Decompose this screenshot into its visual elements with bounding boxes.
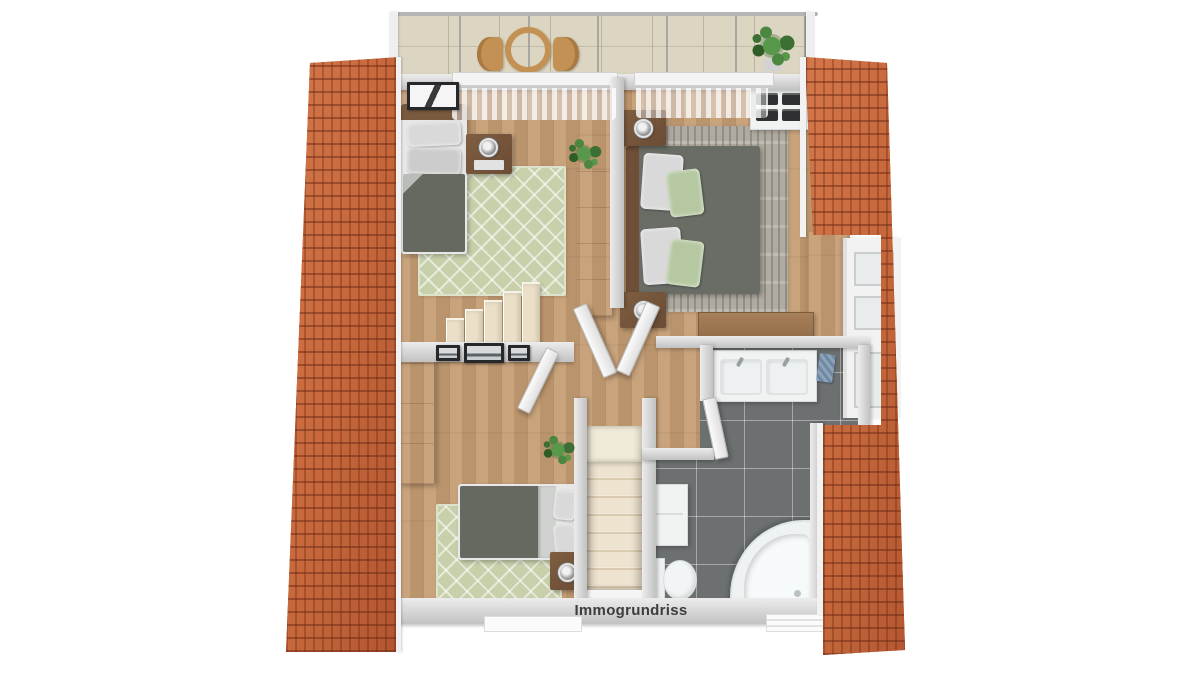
hall-bath-step-wall [642,448,714,460]
gallery-picture [508,345,530,361]
single-bed [401,104,467,254]
upper-staircase [446,282,540,344]
pillow [406,121,461,148]
floor-plan-image: Immogrundriss [0,0,1200,675]
stair-step [484,300,502,344]
nightstand-upper-left [466,134,512,174]
balcony-chair-right [553,37,579,71]
left-roof-slope [286,57,400,652]
hallway-plant-icon [551,443,564,456]
pillow-green [665,238,704,288]
double-sink-vanity [713,350,817,402]
bathroom-east-upper-wall [858,345,870,427]
curtains-master-bedroom [636,88,768,118]
double-bed-master [626,146,760,294]
table-lamp-icon [634,119,653,138]
balcony-door-frame-left [452,72,618,86]
sink-basin [720,359,762,395]
upper-left-plant-icon [577,147,591,161]
wardrobe-upper-left [577,136,612,316]
balcony-plant-icon [763,37,781,55]
cabinet-shelf-line [653,513,683,515]
roof-fascia-right-lower [817,423,823,615]
wardrobe-lower-left [399,352,434,484]
gallery-picture [436,345,460,361]
stair-step [446,318,464,344]
stair-step [522,282,540,344]
bed-headboard [626,146,639,294]
curtains-left-bedroom [452,88,616,120]
double-bed-lower-left [458,484,580,560]
stair-step [503,291,521,344]
plant-pot [764,58,782,71]
stair-landing [587,426,642,462]
round-table [505,27,551,73]
wall-art-upper-left [407,82,459,110]
folded-blanket [538,486,556,558]
balcony-chair-left [477,37,503,71]
bathroom-north-wall [656,336,870,348]
gallery-picture [464,343,504,363]
roof-fascia-right-upper [800,57,806,237]
sink-basin [766,359,808,395]
bathroom-west-upper-wall [700,345,713,401]
lower-staircase [587,462,642,590]
nightstand-shelf [474,160,504,170]
duvet [460,486,542,558]
balcony-door-frame-right [634,72,774,86]
stairwell-wall-east [642,398,656,612]
bathtub-drain-icon [794,590,801,597]
table-lamp-icon [479,138,498,157]
watermark-label: Immogrundriss [556,602,706,619]
stairwell-wall-west [574,398,587,612]
pillow-green [665,168,704,218]
pillow [407,147,462,175]
stair-step [465,309,483,344]
toilet-bowl [663,560,697,600]
roof-fascia-left [396,57,401,652]
balcony-railing-posts [390,16,818,78]
duvet [403,174,465,252]
